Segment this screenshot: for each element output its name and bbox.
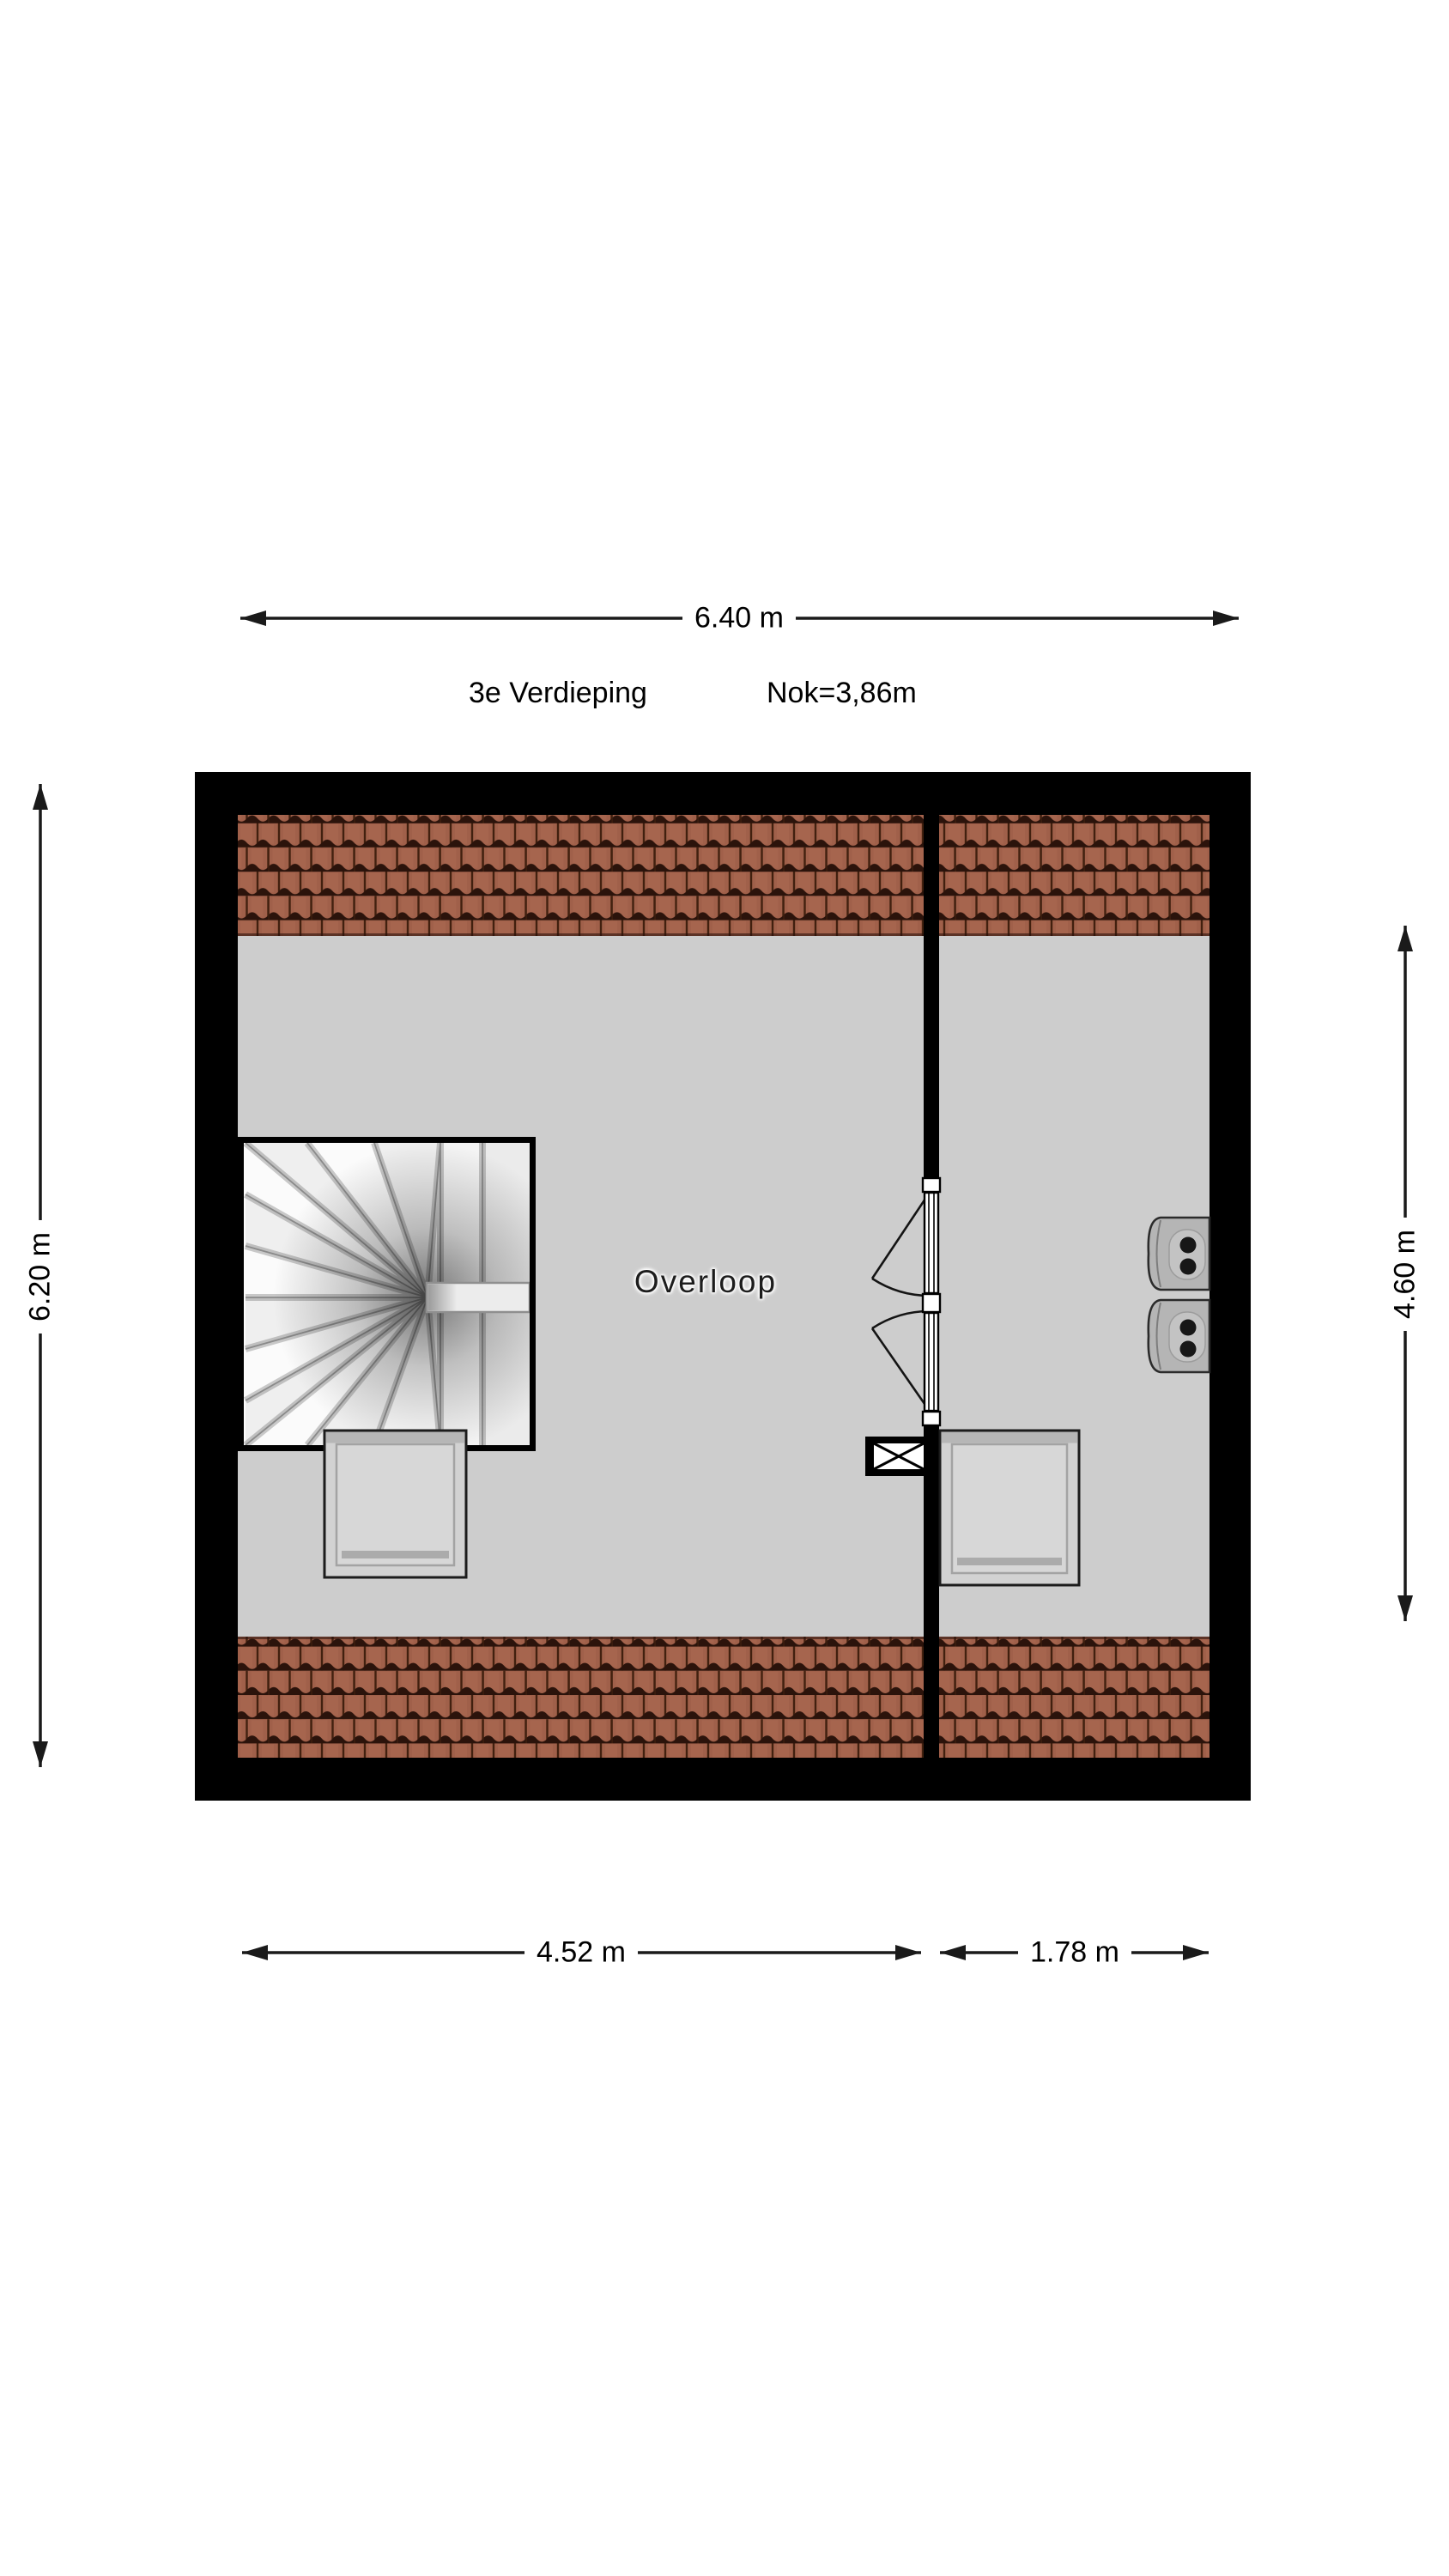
skylight-left <box>324 1431 466 1577</box>
dimension-label-right-depth: 4.60 m <box>1385 1218 1426 1331</box>
stair-landing <box>427 1283 530 1312</box>
shaft-symbol <box>865 1437 939 1476</box>
floorplan-page: 3e Verdieping Nok=3,86m Overloop 6.40 m … <box>0 0 1449 2576</box>
roof-tiles-bottom <box>238 1637 1210 1758</box>
skylight-right <box>940 1431 1079 1585</box>
door-leaf-closed-bottom <box>925 1313 938 1411</box>
dimension-label-top-width: 6.40 m <box>682 598 796 639</box>
dimension-label-left-depth: 6.20 m <box>21 1220 61 1334</box>
door-leaf-closed-top <box>925 1193 938 1293</box>
dimension-label-bottom-right: 1.78 m <box>1018 1933 1131 1973</box>
boiler-unit-top <box>1149 1218 1210 1290</box>
dimension-label-bottom-left: 4.52 m <box>524 1933 638 1973</box>
floor-title: 3e Verdieping <box>469 677 647 710</box>
boiler-unit-bottom <box>1149 1300 1210 1372</box>
ridge-height-label: Nok=3,86m <box>767 677 917 710</box>
room-label-overloop: Overloop <box>634 1264 777 1300</box>
roof-tiles-top <box>238 815 1210 936</box>
staircase <box>238 1137 582 1452</box>
